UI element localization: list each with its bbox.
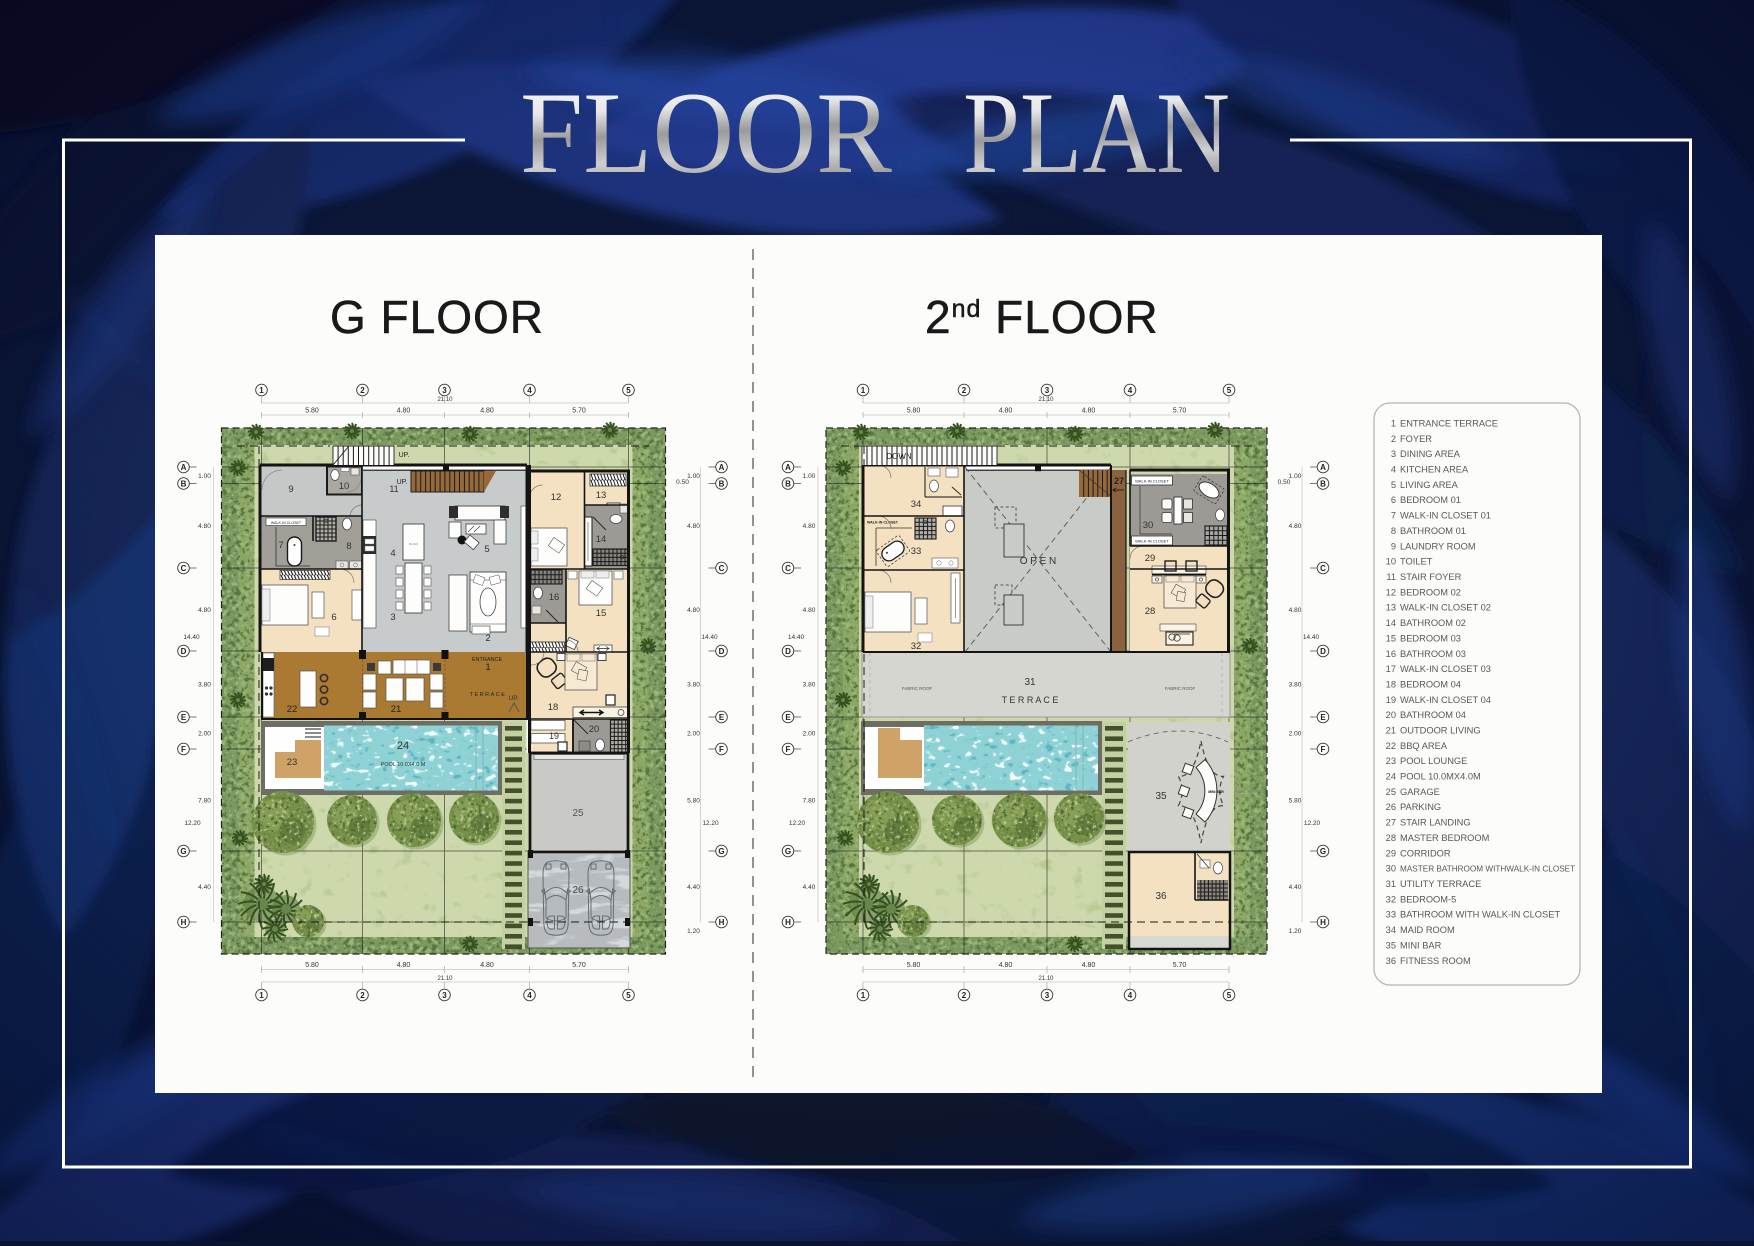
svg-text:DINING AREA: DINING AREA [1400, 449, 1461, 459]
svg-text:5.70: 5.70 [1173, 408, 1187, 415]
svg-text:WALK-IN CLOSET: WALK-IN CLOSET [271, 521, 302, 525]
svg-text:TERRACE: TERRACE [470, 692, 507, 698]
svg-text:BBQ AREA: BBQ AREA [1400, 741, 1448, 751]
svg-text:5.80: 5.80 [1289, 798, 1302, 805]
svg-text:4.80: 4.80 [397, 962, 411, 969]
svg-text:35: 35 [1155, 791, 1167, 802]
svg-text:PARKING: PARKING [1400, 802, 1441, 812]
svg-text:POOL 10.0X4.0 M: POOL 10.0X4.0 M [381, 762, 426, 768]
svg-text:4.80: 4.80 [999, 962, 1013, 969]
svg-text:32: 32 [911, 641, 922, 652]
svg-text:14.40: 14.40 [701, 634, 718, 641]
svg-text:21.10: 21.10 [437, 976, 453, 982]
svg-text:4: 4 [1128, 991, 1133, 1000]
svg-text:B: B [1320, 479, 1326, 488]
svg-text:BATHROOM 02: BATHROOM 02 [1400, 618, 1466, 628]
svg-text:3: 3 [1045, 386, 1050, 395]
svg-text:2: 2 [1391, 434, 1396, 444]
svg-text:4.80: 4.80 [1082, 408, 1096, 415]
svg-text:1: 1 [259, 386, 264, 395]
svg-text:D: D [1320, 647, 1326, 656]
svg-text:GARAGE: GARAGE [1400, 787, 1440, 797]
svg-text:H: H [1320, 918, 1326, 927]
svg-text:4.80: 4.80 [687, 523, 700, 530]
svg-text:12.20: 12.20 [1304, 820, 1321, 827]
svg-text:PLAN: PLAN [963, 69, 1230, 198]
svg-text:G: G [180, 847, 186, 856]
svg-text:E: E [181, 713, 187, 722]
svg-text:23: 23 [1386, 756, 1396, 766]
svg-text:34: 34 [911, 499, 922, 510]
svg-text:4.80: 4.80 [480, 408, 494, 415]
svg-text:A: A [785, 463, 791, 472]
svg-text:1.20: 1.20 [687, 928, 700, 935]
svg-text:BEDROOM-5: BEDROOM-5 [1400, 894, 1456, 904]
svg-text:34: 34 [1386, 925, 1396, 935]
svg-text:1.00: 1.00 [198, 473, 211, 480]
svg-text:2: 2 [360, 386, 365, 395]
svg-text:C: C [719, 564, 725, 573]
svg-text:POOL 10.0MX4.0M: POOL 10.0MX4.0M [1400, 772, 1481, 782]
svg-text:H: H [785, 918, 791, 927]
svg-text:MAID ROOM: MAID ROOM [1400, 925, 1455, 935]
svg-text:31: 31 [1386, 879, 1396, 889]
svg-text:17: 17 [1386, 664, 1396, 674]
svg-text:BEDROOM 04: BEDROOM 04 [1400, 680, 1461, 690]
svg-text:5.70: 5.70 [572, 408, 586, 415]
svg-text:2: 2 [962, 991, 967, 1000]
svg-text:2.00: 2.00 [803, 731, 816, 738]
svg-text:BEDROOM 01: BEDROOM 01 [1400, 495, 1461, 505]
svg-text:BEDROOM 03: BEDROOM 03 [1400, 633, 1461, 643]
svg-text:MASTER BEDROOM: MASTER BEDROOM [1400, 833, 1489, 843]
svg-text:5.80: 5.80 [305, 962, 319, 969]
svg-text:14.40: 14.40 [788, 634, 805, 641]
svg-text:WALK-IN CLOSET: WALK-IN CLOSET [867, 521, 899, 525]
svg-text:ISLAND: ISLAND [409, 542, 418, 546]
svg-text:1: 1 [485, 662, 490, 673]
svg-text:4.40: 4.40 [1289, 884, 1302, 891]
svg-text:F: F [1321, 745, 1326, 754]
svg-text:WALK-IN CLOSET: WALK-IN CLOSET [1135, 539, 1169, 544]
svg-text:7.80: 7.80 [198, 798, 211, 805]
svg-text:1: 1 [861, 386, 866, 395]
svg-text:5: 5 [626, 991, 631, 1000]
svg-text:4.80: 4.80 [1289, 523, 1302, 530]
svg-text:20: 20 [1386, 710, 1396, 720]
svg-text:4.80: 4.80 [1082, 962, 1096, 969]
svg-text:BATHROOM 01: BATHROOM 01 [1400, 526, 1466, 536]
svg-text:3: 3 [1391, 449, 1396, 459]
svg-text:2.00: 2.00 [1289, 731, 1302, 738]
svg-text:11: 11 [1386, 572, 1396, 582]
svg-text:15: 15 [596, 608, 607, 619]
svg-text:G: G [785, 847, 791, 856]
svg-text:TOILET: TOILET [1400, 557, 1433, 567]
svg-text:18: 18 [1386, 680, 1396, 690]
svg-text:0.50: 0.50 [676, 479, 689, 486]
svg-text:E: E [1320, 713, 1326, 722]
svg-text:7: 7 [278, 540, 283, 551]
svg-text:8: 8 [1391, 526, 1396, 536]
svg-text:29: 29 [1145, 553, 1156, 564]
svg-text:4.80: 4.80 [999, 408, 1013, 415]
svg-text:12.20: 12.20 [702, 820, 719, 827]
svg-text:STAIR FOYER: STAIR FOYER [1400, 572, 1462, 582]
svg-text:5: 5 [1391, 480, 1396, 490]
svg-text:WALK-IN CLOSET 01: WALK-IN CLOSET 01 [1400, 511, 1491, 521]
svg-text:O P E N: O P E N [1020, 556, 1057, 567]
svg-text:BATHROOM 03: BATHROOM 03 [1400, 649, 1466, 659]
svg-text:F: F [786, 745, 791, 754]
svg-text:3.80: 3.80 [1289, 682, 1302, 689]
svg-text:30: 30 [1143, 520, 1154, 531]
svg-text:22: 22 [287, 704, 298, 715]
svg-text:4.40: 4.40 [198, 884, 211, 891]
svg-text:4.80: 4.80 [198, 607, 211, 614]
svg-text:BATHROOM 04: BATHROOM 04 [1400, 710, 1466, 720]
svg-text:4.80: 4.80 [1289, 607, 1302, 614]
svg-text:C: C [1320, 564, 1326, 573]
svg-text:5.80: 5.80 [907, 962, 921, 969]
svg-text:2.00: 2.00 [198, 731, 211, 738]
svg-text:G FLOOR: G FLOOR [330, 291, 544, 343]
svg-text:4.80: 4.80 [198, 523, 211, 530]
svg-text:4.40: 4.40 [687, 884, 700, 891]
svg-text:15: 15 [1386, 633, 1396, 643]
svg-text:LIVING AREA: LIVING AREA [1400, 480, 1459, 490]
svg-text:14: 14 [596, 534, 607, 545]
svg-text:23: 23 [287, 757, 298, 768]
svg-text:D: D [785, 647, 791, 656]
svg-text:H: H [181, 918, 187, 927]
svg-text:DOWN: DOWN [886, 452, 912, 461]
svg-text:10: 10 [1386, 557, 1396, 567]
svg-text:32: 32 [1386, 894, 1396, 904]
svg-text:4.80: 4.80 [397, 408, 411, 415]
svg-text:12.20: 12.20 [184, 820, 201, 827]
svg-text:21.10: 21.10 [1038, 397, 1054, 403]
svg-text:28: 28 [1145, 606, 1156, 617]
svg-text:21: 21 [1386, 726, 1396, 736]
svg-text:35: 35 [1386, 940, 1396, 950]
svg-text:T E R R A C E: T E R R A C E [1002, 695, 1059, 705]
svg-text:E: E [785, 713, 791, 722]
svg-text:26: 26 [572, 885, 584, 896]
svg-text:E: E [719, 713, 725, 722]
svg-text:3.80: 3.80 [687, 682, 700, 689]
svg-text:FLOOR: FLOOR [520, 69, 892, 198]
svg-text:WALK-IN CLOSET 04: WALK-IN CLOSET 04 [1400, 695, 1491, 705]
svg-text:2.00: 2.00 [687, 731, 700, 738]
svg-text:C: C [785, 564, 791, 573]
svg-text:4: 4 [1128, 386, 1133, 395]
svg-text:UP.: UP. [509, 695, 519, 702]
svg-text:1: 1 [259, 991, 264, 1000]
svg-text:3.80: 3.80 [803, 682, 816, 689]
svg-text:36: 36 [1155, 891, 1167, 902]
svg-text:B: B [719, 479, 725, 488]
svg-text:33: 33 [1386, 910, 1396, 920]
svg-text:2: 2 [485, 633, 490, 644]
svg-text:16: 16 [1386, 649, 1396, 659]
svg-text:5.70: 5.70 [572, 962, 586, 969]
svg-text:4: 4 [390, 548, 395, 559]
svg-text:F: F [719, 745, 724, 754]
svg-text:3: 3 [1045, 991, 1050, 1000]
svg-text:33: 33 [911, 546, 922, 557]
svg-text:G: G [1320, 847, 1326, 856]
svg-text:1.00: 1.00 [687, 473, 700, 480]
svg-text:1.00: 1.00 [1289, 473, 1302, 480]
svg-text:WALK-IN CLOSET 03: WALK-IN CLOSET 03 [1400, 664, 1491, 674]
svg-text:B: B [181, 479, 187, 488]
svg-text:STAIR LANDING: STAIR LANDING [1400, 818, 1471, 828]
svg-text:16: 16 [549, 592, 560, 603]
svg-text:CORRIDOR: CORRIDOR [1400, 848, 1451, 858]
svg-text:6: 6 [1391, 495, 1396, 505]
svg-text:0.50: 0.50 [1278, 479, 1291, 486]
svg-text:MASTER BATHROOM WITHWALK-IN CL: MASTER BATHROOM WITHWALK-IN CLOSET [1400, 865, 1575, 874]
svg-text:29: 29 [1386, 848, 1396, 858]
svg-text:4.80: 4.80 [803, 607, 816, 614]
svg-text:5: 5 [484, 544, 489, 555]
svg-text:FABRIC ROOF: FABRIC ROOF [902, 686, 933, 691]
svg-text:3: 3 [442, 386, 447, 395]
svg-text:4.80: 4.80 [687, 607, 700, 614]
svg-text:FABRIC ROOF: FABRIC ROOF [1235, 790, 1258, 794]
svg-text:4: 4 [1391, 465, 1396, 475]
svg-text:21: 21 [391, 704, 402, 715]
svg-text:13: 13 [596, 490, 607, 501]
svg-text:22: 22 [1386, 741, 1396, 751]
svg-text:POOL LOUNGE: POOL LOUNGE [1400, 756, 1467, 766]
svg-text:D: D [719, 647, 725, 656]
svg-text:4.80: 4.80 [480, 962, 494, 969]
svg-text:30: 30 [1386, 864, 1396, 874]
svg-text:5.80: 5.80 [907, 408, 921, 415]
svg-text:18: 18 [548, 702, 559, 713]
svg-text:A: A [719, 463, 725, 472]
svg-text:A: A [181, 463, 187, 472]
svg-text:7.80: 7.80 [803, 798, 816, 805]
svg-text:D: D [181, 647, 187, 656]
svg-text:C: C [181, 564, 187, 573]
svg-text:H: H [719, 918, 725, 927]
svg-text:19: 19 [1386, 695, 1396, 705]
svg-text:4: 4 [527, 991, 532, 1000]
svg-text:9: 9 [1391, 541, 1396, 551]
svg-text:27: 27 [1386, 818, 1396, 828]
svg-text:20: 20 [589, 724, 600, 735]
svg-text:5.80: 5.80 [687, 798, 700, 805]
svg-text:24: 24 [397, 740, 409, 752]
svg-text:WALK-IN CLOSET: WALK-IN CLOSET [1135, 479, 1169, 484]
svg-text:5.70: 5.70 [1173, 962, 1187, 969]
svg-text:12: 12 [1386, 587, 1396, 597]
svg-text:12: 12 [551, 492, 562, 503]
svg-text:1.00: 1.00 [803, 473, 816, 480]
svg-text:WALK-IN CLOSET 02: WALK-IN CLOSET 02 [1400, 603, 1491, 613]
svg-text:B: B [785, 479, 791, 488]
svg-text:3: 3 [390, 612, 395, 623]
svg-text:10: 10 [339, 481, 350, 492]
svg-text:BEDROOM 02: BEDROOM 02 [1400, 587, 1461, 597]
svg-text:13: 13 [1386, 603, 1396, 613]
svg-text:F: F [181, 745, 186, 754]
svg-text:A: A [1320, 463, 1326, 472]
svg-text:2: 2 [360, 991, 365, 1000]
svg-text:KITCHEN AREA: KITCHEN AREA [1400, 465, 1469, 475]
svg-text:1.20: 1.20 [1289, 928, 1302, 935]
svg-text:LAUNDRY ROOM: LAUNDRY ROOM [1400, 541, 1476, 551]
svg-text:36: 36 [1386, 956, 1396, 966]
svg-text:25: 25 [1386, 787, 1396, 797]
svg-text:27: 27 [1114, 476, 1124, 486]
svg-text:FITNESS ROOM: FITNESS ROOM [1400, 956, 1471, 966]
svg-text:2: 2 [962, 386, 967, 395]
svg-text:4.80: 4.80 [803, 523, 816, 530]
svg-text:UP.: UP. [399, 452, 410, 459]
svg-text:FABRIC ROOF: FABRIC ROOF [1165, 686, 1196, 691]
svg-text:26: 26 [1386, 802, 1396, 812]
svg-text:5.80: 5.80 [305, 408, 319, 415]
svg-text:BATHROOM WITH WALK-IN CLOSET: BATHROOM WITH WALK-IN CLOSET [1400, 910, 1560, 920]
svg-text:21.10: 21.10 [437, 397, 453, 403]
svg-text:4: 4 [527, 386, 532, 395]
svg-text:8: 8 [346, 541, 351, 552]
svg-text:31: 31 [1024, 677, 1036, 688]
svg-text:12.20: 12.20 [789, 820, 806, 827]
svg-text:6: 6 [331, 612, 336, 623]
svg-text:9: 9 [288, 484, 293, 495]
svg-text:14: 14 [1386, 618, 1396, 628]
svg-text:FOYER: FOYER [1400, 434, 1432, 444]
svg-text:UTILITY TERRACE: UTILITY TERRACE [1400, 879, 1481, 889]
svg-text:MINI BAR: MINI BAR [1400, 940, 1442, 950]
svg-text:14.40: 14.40 [183, 634, 200, 641]
svg-text:3: 3 [442, 991, 447, 1000]
svg-text:4.40: 4.40 [803, 884, 816, 891]
svg-text:MINI BAR: MINI BAR [1208, 790, 1224, 794]
svg-text:5: 5 [1227, 386, 1232, 395]
svg-text:G: G [718, 847, 724, 856]
svg-text:ENTRANCE TERRACE: ENTRANCE TERRACE [1400, 419, 1498, 429]
svg-text:3.80: 3.80 [198, 682, 211, 689]
svg-text:25: 25 [572, 808, 584, 819]
svg-text:24: 24 [1386, 772, 1396, 782]
svg-text:28: 28 [1386, 833, 1396, 843]
svg-text:7: 7 [1391, 511, 1396, 521]
svg-text:19: 19 [549, 731, 559, 741]
svg-text:1: 1 [1391, 419, 1396, 429]
svg-text:11: 11 [389, 484, 398, 494]
svg-text:14.40: 14.40 [1303, 634, 1320, 641]
svg-text:OUTDOOR LIVING: OUTDOOR LIVING [1400, 726, 1481, 736]
svg-text:5: 5 [626, 386, 631, 395]
svg-text:21.10: 21.10 [1038, 976, 1054, 982]
svg-text:1: 1 [861, 991, 866, 1000]
svg-text:5: 5 [1227, 991, 1232, 1000]
